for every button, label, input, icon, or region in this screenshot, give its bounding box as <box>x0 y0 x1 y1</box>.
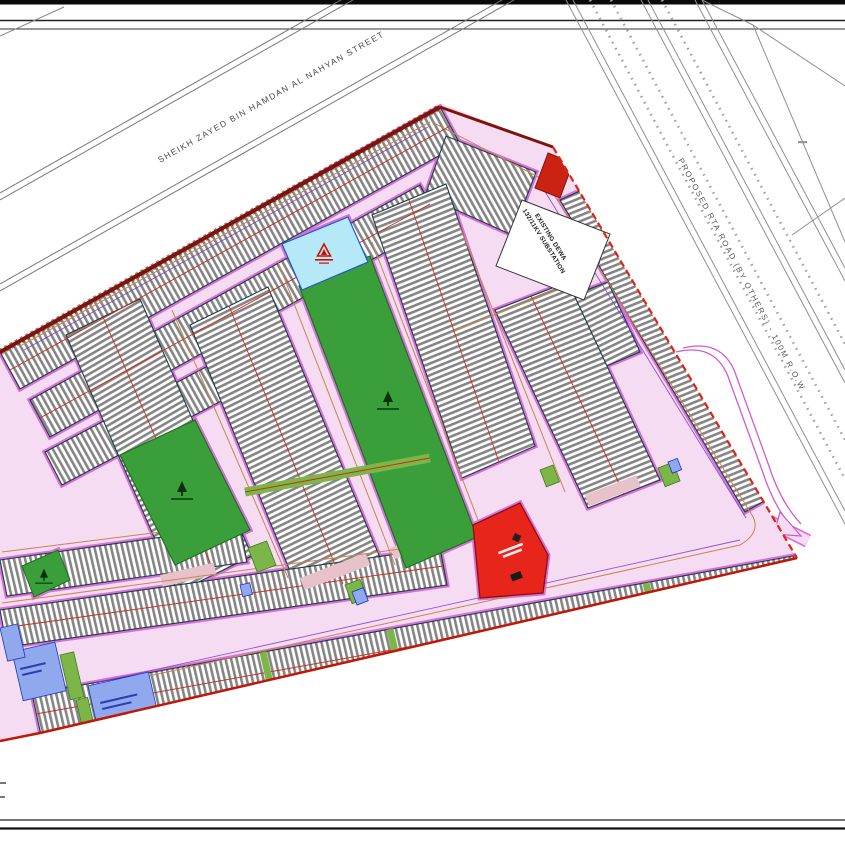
masterplan-drawing: SHEIKH ZAYED BIN HAMDAN AL NAHYAN STREET… <box>0 0 845 845</box>
edge-text-fragment <box>0 796 5 798</box>
frame-top-bar <box>0 0 845 5</box>
corner-line <box>0 7 64 36</box>
edge-text-fragment <box>0 782 6 784</box>
adjacent-parcel-lines <box>702 0 845 242</box>
sheikh-zayed-road-label: SHEIKH ZAYED BIN HAMDAN AL NAHYAN STREET <box>156 29 386 165</box>
parcel-text-fragment <box>798 141 807 143</box>
masterplan-sheet: SHEIKH ZAYED BIN HAMDAN AL NAHYAN STREET… <box>0 0 845 845</box>
